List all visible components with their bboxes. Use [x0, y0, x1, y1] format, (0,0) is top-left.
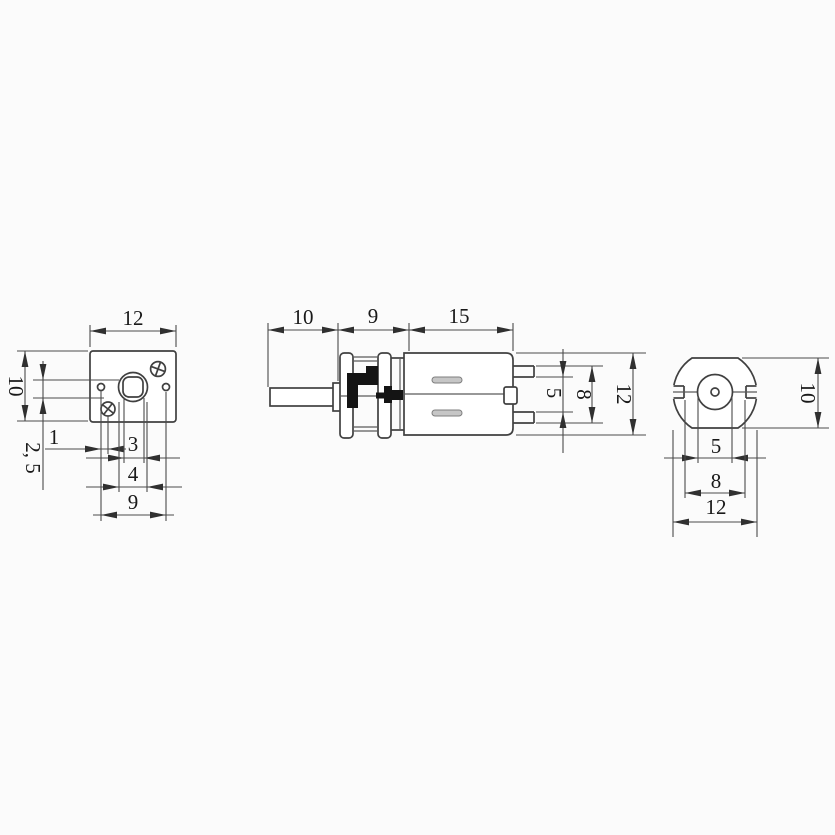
- vent-slot-bottom: [432, 410, 462, 416]
- shaft-hole: [123, 377, 143, 397]
- dim-front-offset: 2, 5: [21, 442, 45, 474]
- dim-side-gearbox-length: 9: [368, 304, 379, 328]
- dim-front-height: 10: [4, 376, 28, 397]
- pin-hole-left: [98, 384, 105, 391]
- dim-rear-boss-diameter: 5: [711, 434, 722, 458]
- dim-side-motor-length: 15: [449, 304, 470, 328]
- gear-train-silhouette: [347, 366, 403, 408]
- dim-front-width: 12: [123, 306, 144, 330]
- dim-front-shaft-hole: 3: [128, 432, 139, 456]
- output-shaft: [270, 388, 334, 406]
- pin-hole-right: [163, 384, 170, 391]
- dim-rear-body-diameter: 12: [706, 495, 727, 519]
- rear-shaft-tip: [711, 388, 719, 396]
- side-view: [270, 353, 534, 438]
- dim-side-shaft-length: 10: [293, 305, 314, 329]
- dim-rear-flat-width: 8: [711, 469, 722, 493]
- front-view: [90, 351, 176, 422]
- dim-side-terminal-inner: 5: [542, 388, 566, 399]
- technical-drawing: 12 10 2, 5 1 3 4 9: [0, 0, 835, 835]
- vent-slot-top: [432, 377, 462, 383]
- rear-bearing-boss: [504, 387, 517, 404]
- dim-front-hole-pitch: 1: [49, 425, 60, 449]
- dim-side-body-height: 12: [612, 384, 636, 405]
- rear-view: [666, 358, 764, 428]
- dim-rear-flat-height: 10: [796, 383, 820, 404]
- dim-front-hole-span: 9: [128, 490, 139, 514]
- dim-side-terminal-outer: 8: [572, 389, 596, 400]
- dim-front-boss: 4: [128, 462, 139, 486]
